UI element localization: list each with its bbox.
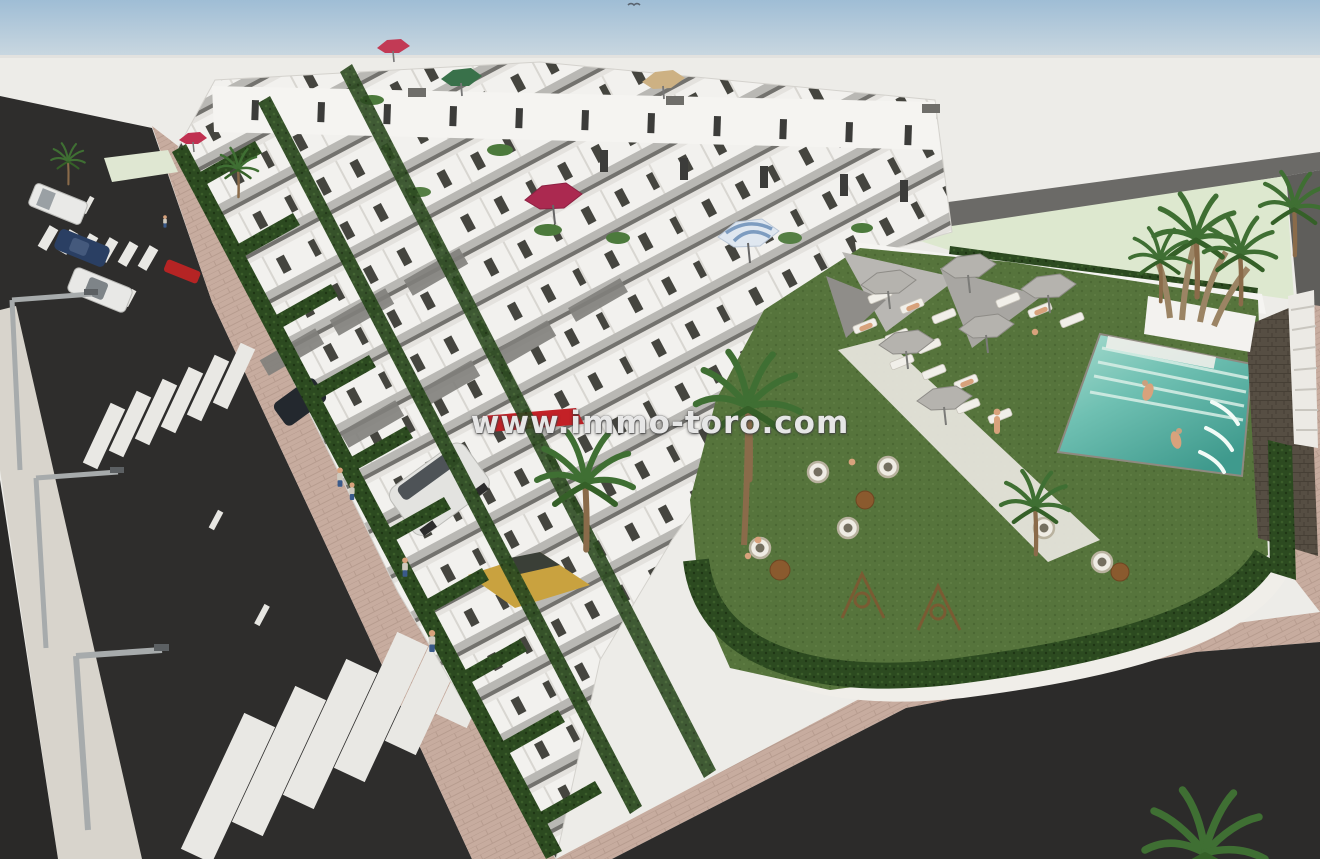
horizon [0,55,1320,58]
architectural-render: www.immo-toro.com [0,0,1320,859]
render-scene [0,0,1320,859]
sky [0,0,1320,56]
